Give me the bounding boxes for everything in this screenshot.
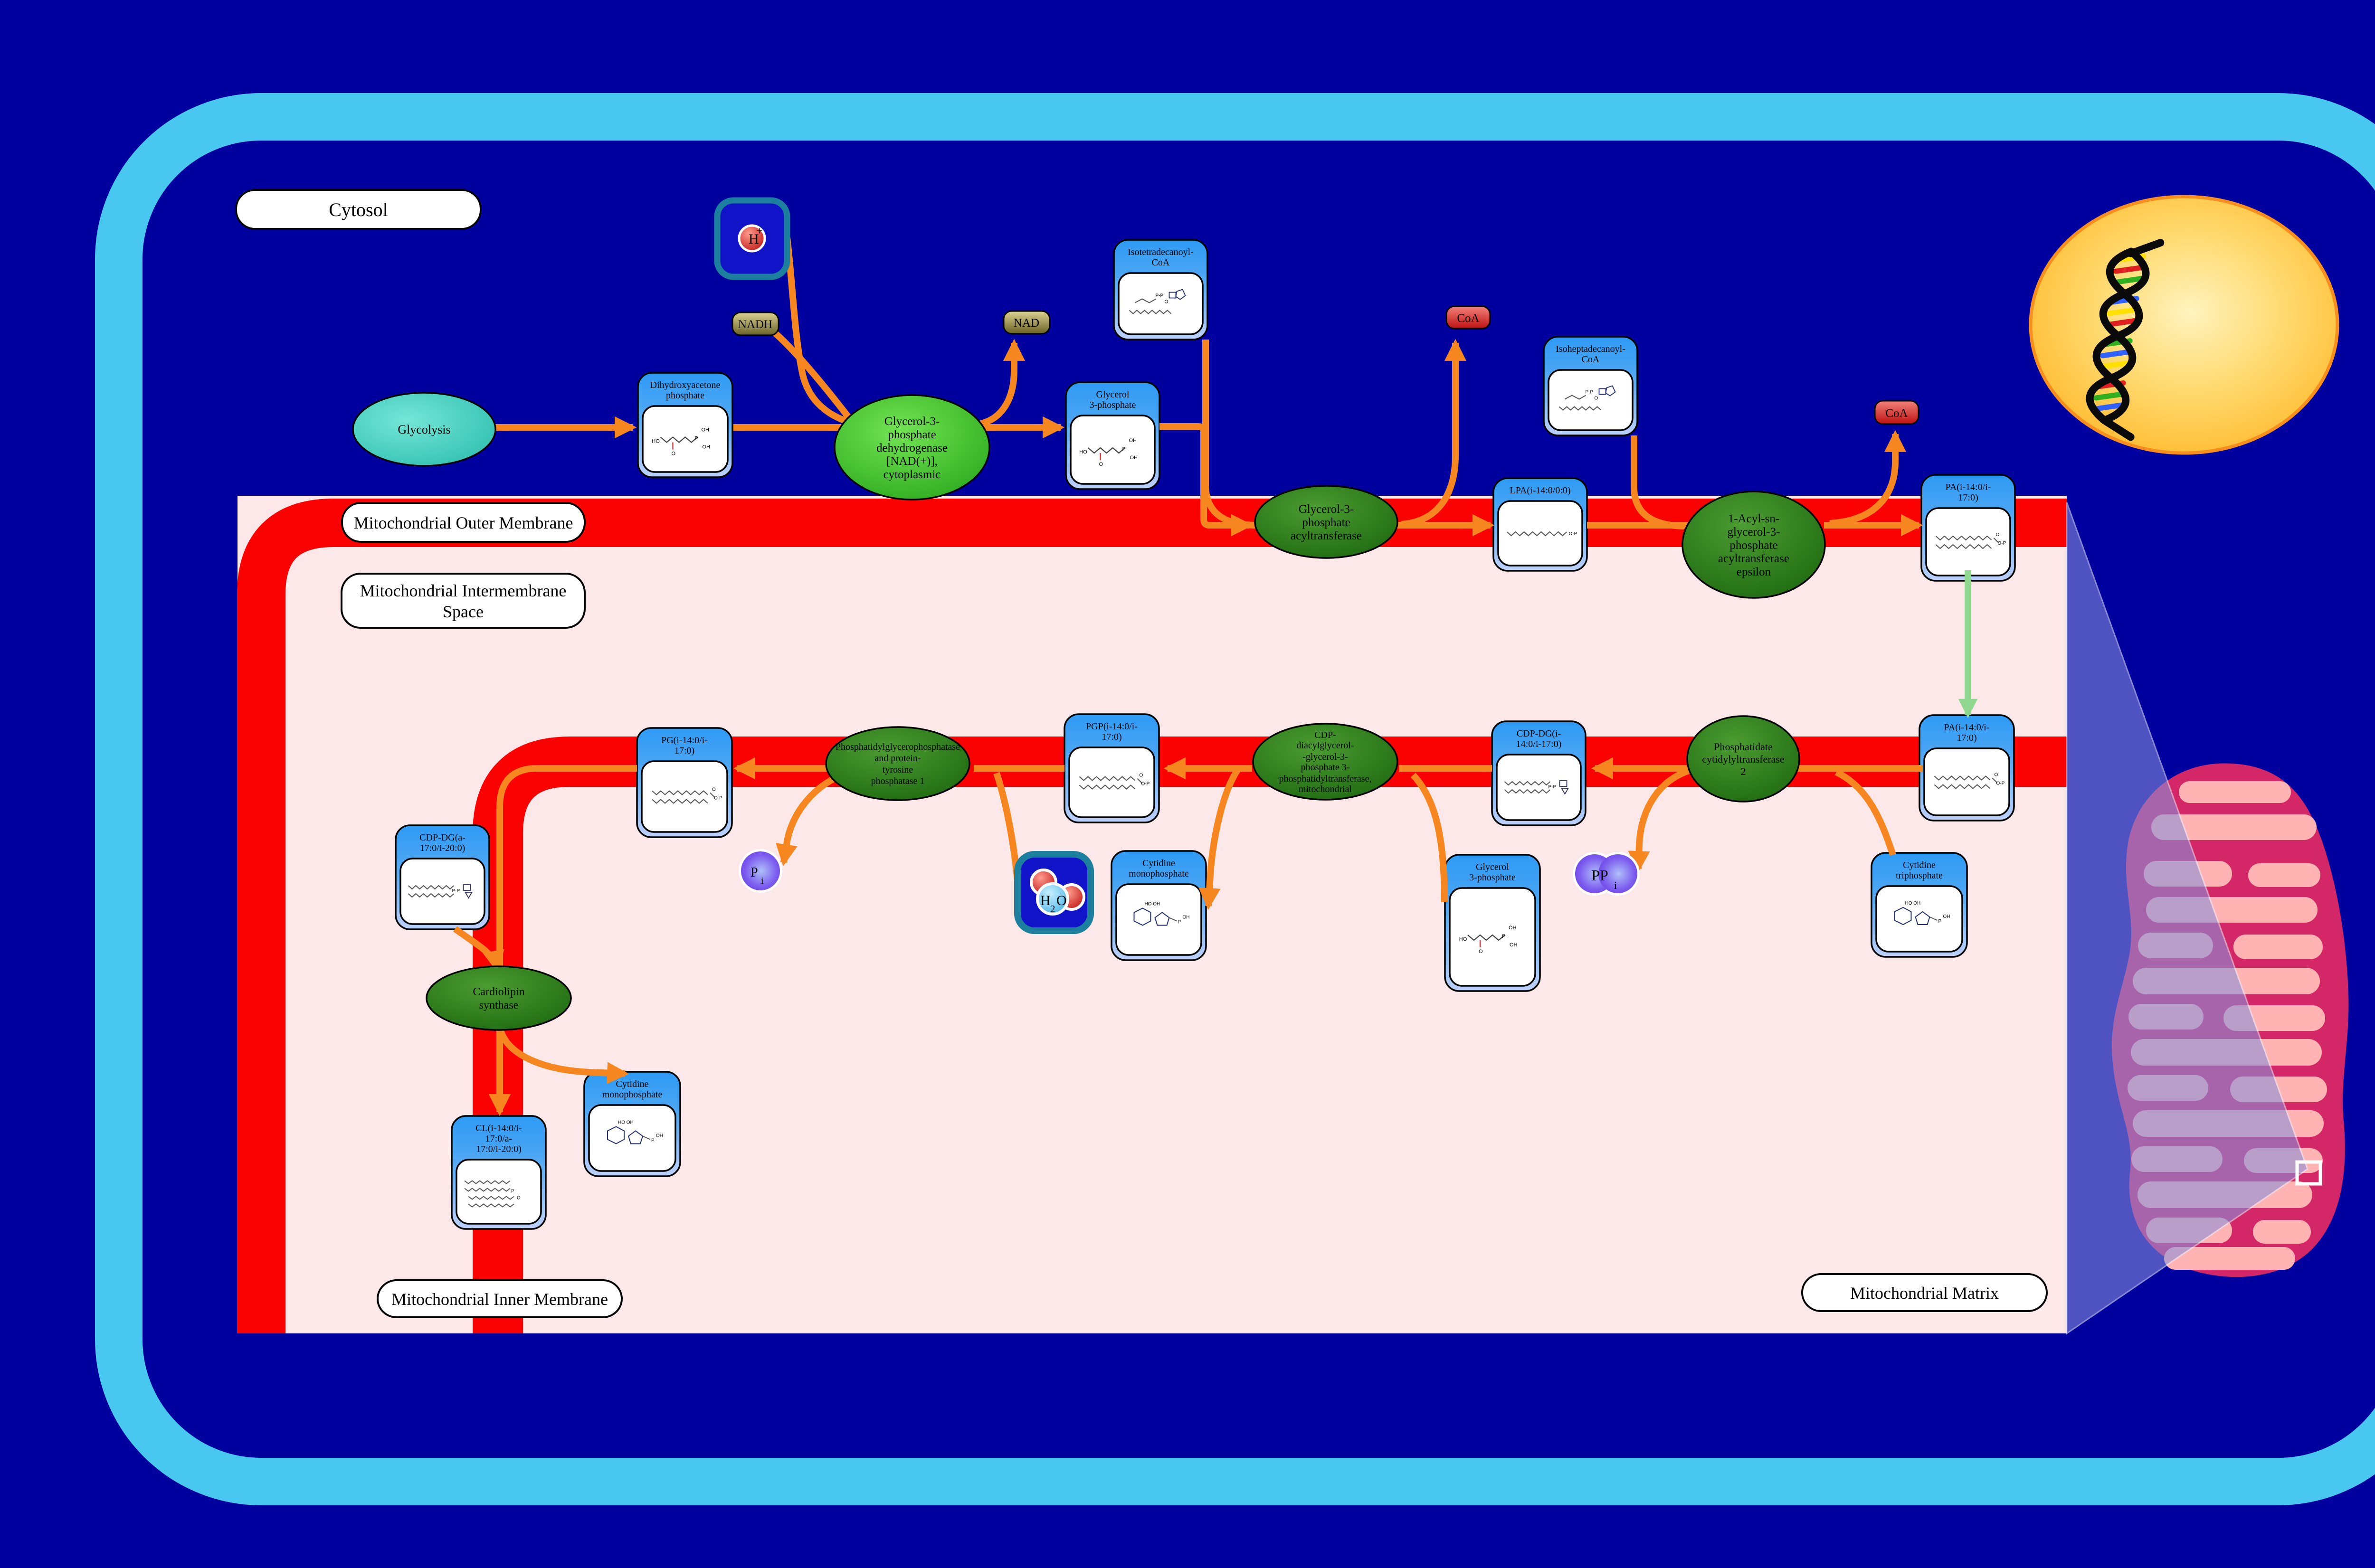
svg-text:Cytidine: Cytidine — [1903, 860, 1936, 870]
svg-text:P: P — [1122, 446, 1126, 452]
svg-text:O: O — [1595, 396, 1598, 401]
svg-text:OH: OH — [703, 444, 711, 450]
svg-text:O: O — [1099, 462, 1103, 467]
svg-text:O: O — [517, 1196, 521, 1201]
svg-text:O-P: O-P — [1998, 541, 2006, 546]
svg-text:17:0): 17:0) — [1102, 732, 1121, 742]
svg-text:synthase: synthase — [479, 999, 519, 1011]
svg-text:17:0): 17:0) — [674, 746, 694, 756]
svg-text:-glycerol-3-: -glycerol-3- — [1302, 752, 1348, 762]
svg-text:P: P — [511, 1189, 514, 1194]
svg-text:P-P: P-P — [1156, 293, 1164, 299]
svg-text:[NAD(+)],: [NAD(+)], — [886, 455, 938, 468]
svg-text:cytoplasmic: cytoplasmic — [883, 468, 941, 481]
svg-text:monophosphate: monophosphate — [602, 1089, 663, 1100]
svg-text:OH: OH — [1130, 455, 1138, 461]
svg-text:P: P — [1938, 919, 1942, 924]
svg-text:Cardiolipin: Cardiolipin — [473, 986, 524, 998]
svg-text:Glycerol-3-: Glycerol-3- — [884, 415, 940, 428]
svg-text:O: O — [1056, 893, 1067, 908]
svg-text:Phosphatidylglycerophosphatase: Phosphatidylglycerophosphatase — [836, 742, 960, 752]
svg-text:1-Acyl-sn-: 1-Acyl-sn- — [1728, 512, 1779, 525]
svg-text:O: O — [1140, 773, 1143, 778]
svg-text:CDP-DG(i-: CDP-DG(i- — [1517, 728, 1561, 739]
svg-text:17:0/a-: 17:0/a- — [485, 1133, 513, 1144]
svg-text:Phosphatidate: Phosphatidate — [1714, 741, 1772, 753]
svg-text:OH: OH — [1509, 925, 1517, 931]
svg-text:PG(i-14:0/i-: PG(i-14:0/i- — [661, 735, 708, 746]
svg-text:PA(i-14:0/i-: PA(i-14:0/i- — [1944, 722, 1990, 733]
svg-text:phosphatidyltransferase,: phosphatidyltransferase, — [1279, 774, 1372, 784]
svg-text:O-P: O-P — [1996, 781, 2005, 786]
svg-text:OH: OH — [1943, 914, 1950, 919]
svg-text:Dihydroxyacetone: Dihydroxyacetone — [650, 380, 721, 390]
svg-text:O: O — [1479, 949, 1483, 954]
svg-text:17:0/i-20:0): 17:0/i-20:0) — [420, 843, 465, 853]
svg-text:NAD: NAD — [1014, 317, 1039, 330]
svg-text:CoA: CoA — [1457, 312, 1479, 325]
svg-text:Mitochondrial Matrix: Mitochondrial Matrix — [1850, 1284, 1999, 1303]
svg-text:cytidylyltransferase: cytidylyltransferase — [1702, 753, 1785, 765]
svg-text:P: P — [1502, 934, 1505, 939]
svg-text:CoA: CoA — [1885, 407, 1908, 420]
svg-text:O-P: O-P — [714, 796, 722, 801]
svg-text:HO: HO — [652, 439, 660, 444]
svg-text:phosphate: phosphate — [1302, 516, 1350, 529]
svg-text:O-P: O-P — [1569, 531, 1577, 537]
svg-text:phosphate: phosphate — [666, 390, 704, 401]
svg-text:PP: PP — [1591, 867, 1608, 884]
svg-text:OH: OH — [1183, 915, 1190, 920]
svg-text:O: O — [712, 787, 716, 793]
svg-text:CDP-DG(a-: CDP-DG(a- — [419, 832, 465, 843]
svg-text:17:0/i-20:0): 17:0/i-20:0) — [476, 1144, 522, 1154]
svg-text:phosphatase 1: phosphatase 1 — [871, 776, 925, 786]
svg-text:2: 2 — [1050, 903, 1055, 915]
svg-text:PA(i-14:0/i-: PA(i-14:0/i- — [1946, 482, 1991, 492]
svg-text:mitochondrial: mitochondrial — [1299, 784, 1352, 794]
svg-text:H: H — [1040, 893, 1051, 908]
svg-text:O-P: O-P — [1141, 782, 1150, 787]
svg-text:acyltransferase: acyltransferase — [1291, 529, 1362, 542]
svg-text:P-P: P-P — [1586, 390, 1594, 395]
svg-text:HO OH: HO OH — [618, 1120, 634, 1125]
svg-text:P: P — [695, 436, 698, 442]
svg-text:OH: OH — [656, 1133, 663, 1139]
svg-text:Mitochondrial Outer Membrane: Mitochondrial Outer Membrane — [354, 513, 573, 532]
svg-text:diacylglycerol-: diacylglycerol- — [1296, 740, 1354, 751]
svg-text:phosphate: phosphate — [1729, 539, 1777, 552]
svg-text:LPA(i-14:0/0:0): LPA(i-14:0/0:0) — [1510, 485, 1570, 496]
svg-text:O: O — [1165, 300, 1168, 305]
svg-text:PGP(i-14:0/i-: PGP(i-14:0/i- — [1086, 721, 1138, 732]
svg-text:Cytidine: Cytidine — [616, 1079, 649, 1089]
svg-text:O: O — [672, 451, 676, 457]
svg-text:O: O — [1996, 532, 2000, 538]
svg-text:HO OH: HO OH — [1145, 902, 1160, 907]
svg-text:P: P — [750, 865, 758, 880]
svg-text:HO: HO — [1079, 449, 1087, 455]
svg-text:Glycerol: Glycerol — [1096, 389, 1130, 400]
svg-text:Glycerol-3-: Glycerol-3- — [1299, 503, 1354, 516]
svg-text:3-phosphate: 3-phosphate — [1469, 872, 1516, 883]
svg-text:acyltransferase: acyltransferase — [1718, 552, 1789, 565]
svg-text:HO: HO — [1459, 936, 1467, 942]
svg-text:Isotetradecanoyl-: Isotetradecanoyl- — [1128, 247, 1194, 257]
svg-text:P-P: P-P — [1548, 784, 1557, 790]
svg-text:CoA: CoA — [1152, 257, 1170, 268]
svg-text:Isoheptadecanoyl-: Isoheptadecanoyl- — [1556, 344, 1625, 354]
svg-text:P: P — [651, 1138, 655, 1143]
svg-text:glycerol-3-: glycerol-3- — [1727, 526, 1780, 538]
svg-text:+: + — [756, 225, 763, 237]
svg-text:P-P: P-P — [452, 888, 460, 894]
svg-text:3-phosphate: 3-phosphate — [1090, 400, 1136, 410]
svg-text:Glycolysis: Glycolysis — [398, 423, 450, 436]
svg-text:i: i — [761, 876, 764, 886]
svg-text:OH: OH — [702, 427, 710, 433]
svg-text:HO OH: HO OH — [1905, 901, 1921, 906]
svg-text:dehydrogenase: dehydrogenase — [876, 442, 948, 454]
svg-text:17:0): 17:0) — [1958, 492, 1978, 503]
svg-text:O: O — [1995, 773, 1998, 778]
svg-text:NADH: NADH — [738, 318, 772, 331]
svg-text:and protein-: and protein- — [874, 753, 921, 764]
svg-text:17:0): 17:0) — [1957, 733, 1976, 743]
svg-text:CDP-: CDP- — [1314, 730, 1336, 740]
svg-text:tyrosine: tyrosine — [883, 765, 913, 775]
svg-text:OH: OH — [1129, 438, 1137, 444]
svg-text:monophosphate: monophosphate — [1129, 869, 1189, 879]
svg-text:P: P — [1178, 920, 1181, 925]
svg-text:phosphate 3-: phosphate 3- — [1301, 762, 1350, 773]
svg-text:Space: Space — [443, 602, 484, 621]
svg-text:triphosphate: triphosphate — [1896, 870, 1943, 881]
svg-text:i: i — [1614, 879, 1617, 891]
svg-text:CL(i-14:0/i-: CL(i-14:0/i- — [475, 1123, 522, 1133]
svg-text:14:0/i-17:0): 14:0/i-17:0) — [1516, 739, 1562, 749]
svg-text:Glycerol: Glycerol — [1476, 862, 1509, 872]
svg-text:epsilon: epsilon — [1737, 566, 1771, 578]
svg-text:Mitochondrial Inner Membrane: Mitochondrial Inner Membrane — [391, 1290, 608, 1309]
svg-text:phosphate: phosphate — [888, 428, 936, 441]
svg-text:Cytosol: Cytosol — [329, 199, 388, 220]
svg-text:CoA: CoA — [1582, 354, 1600, 365]
svg-text:Mitochondrial Intermembrane: Mitochondrial Intermembrane — [360, 581, 567, 600]
svg-text:Cytidine: Cytidine — [1142, 858, 1175, 869]
svg-text:OH: OH — [1510, 942, 1518, 948]
svg-text:2: 2 — [1741, 765, 1746, 777]
